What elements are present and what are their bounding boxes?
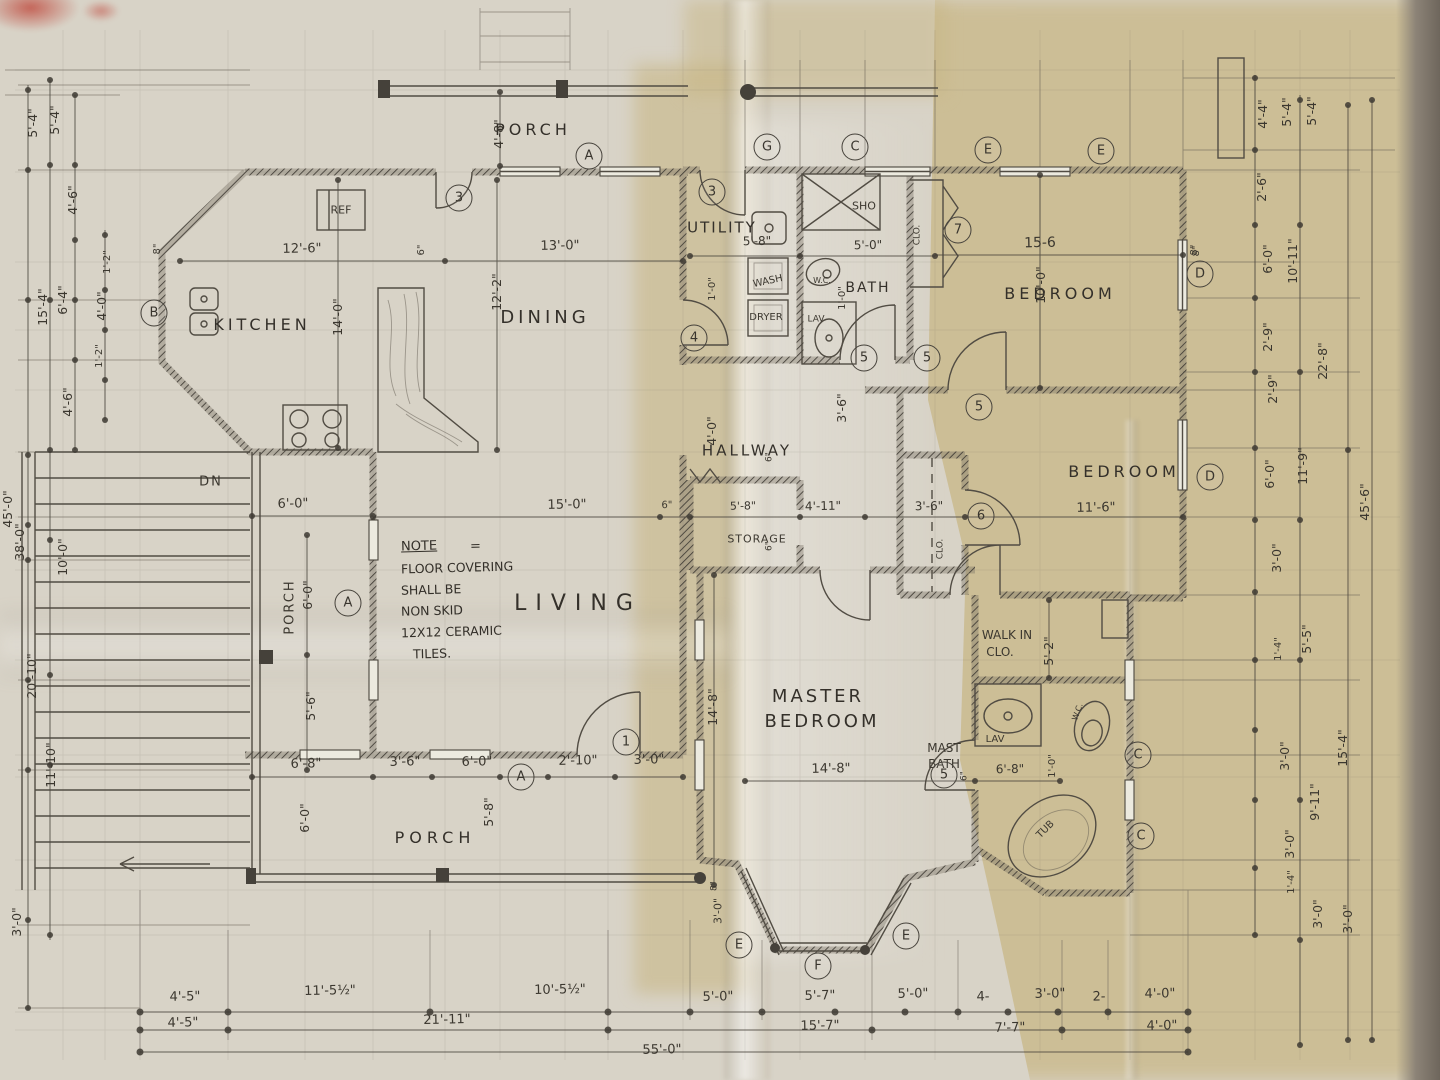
dim-left: 20'-10" [26,653,39,699]
tub [992,778,1112,894]
dim-left: 11'-10" [45,742,58,788]
dim-bottom: 4- [976,990,989,1003]
stove [283,405,347,450]
room-label-dining: DINING [500,309,589,327]
dim-porchb-2: 3'-6" [389,755,420,769]
dim-utility-width: 5'-8" [743,235,772,248]
note-line-3: NON SKID [401,604,463,618]
dim-bottom: 4'-0" [1146,1019,1177,1033]
room-label-storage: STORAGE [727,534,786,545]
dim-bay-3-0: 3'-0" [713,898,724,924]
dim-bottom: 5'-7" [804,989,835,1003]
dim-right: 3'-0" [1284,829,1297,859]
dim-left: 3'-0" [11,907,24,937]
room-label-bedroom2: BEDROOM [1068,464,1180,480]
dim-left: 38'-0" [14,523,27,561]
door-marker-4: 4 [681,325,708,352]
grid-marker-e: E [893,923,920,950]
room-label-master-1: MASTER [772,688,864,706]
dim-storage-width: 5'-8" [730,500,756,512]
door-marker-3: 3 [699,179,726,206]
door-marker-7: 7 [945,217,972,244]
room-label-master-2: BEDROOM [765,713,880,731]
dim-right: 5'-5" [1301,624,1314,654]
door-marker-1: 1 [613,729,640,756]
grid-marker-a: A [576,143,603,170]
dim-bottom: 4'-5" [167,1016,198,1030]
dim-mastbath-width: 6'-8" [996,763,1025,776]
dim-left: 45'-0" [2,490,15,528]
dim-bath-width: 5'-0" [854,239,883,252]
grid-marker-c: C [1128,823,1155,850]
dim-right: 5'-4" [1306,96,1319,126]
dim-porchb-5: 3'-0" [633,753,664,767]
dim-bottom: 15'-7" [800,1019,839,1033]
room-label-kitchen: KITCHEN [213,317,310,333]
dim-right: 2'-9" [1267,374,1280,404]
dim-wall-6in: 6" [961,771,970,781]
fixture-label-shower: SHO [852,201,876,212]
grid-marker-a: A [508,764,535,791]
fixture-label-ref: REF [331,205,352,216]
dim-right: 2'-9" [1262,322,1275,352]
door-marker-5: 5 [931,762,958,789]
grid-marker-e: E [975,137,1002,164]
dim-right: 4'-4" [1257,99,1270,129]
dim-wall-6in: 6" [417,245,427,256]
dim-wall-8in: 8" [711,881,720,891]
room-label-porch-top: PORCH [495,122,571,138]
dim-bottom: 3'-0" [1034,987,1065,1001]
dim-left: 6'-4" [57,285,70,315]
dim-master-width: 14'-8" [811,762,850,776]
dim-bottom-total: 55'-0" [642,1043,681,1057]
grid-marker-e: E [726,932,753,959]
dim-bottom: 10'-5½" [534,983,586,997]
dim-utility-1-0: 1'-0" [708,277,718,301]
dim-porchl-v2: 5'-6" [305,691,318,721]
room-label-bath: BATH [845,281,890,295]
dim-right: 2'-6" [1256,172,1269,202]
dim-bedroom1-depth: 10'-0" [1035,266,1048,304]
note-title: NOTE [401,540,437,554]
dim-right: 10'-11" [1287,238,1300,284]
note-line-4: 12X12 CERAMIC [401,625,502,640]
dim-right: 1'-4" [1274,637,1284,661]
dim-porchb-3: 6'-0" [461,755,492,769]
fixture-label-wc: W.C. [813,277,831,285]
note-line-1: FLOOR COVERING [401,561,514,576]
note-line-5: TILES. [413,648,451,661]
dim-hall-3-6: 3'-6" [836,393,849,423]
note-line-2: SHALL BE [401,583,462,597]
dim-bottom: 21'-11" [423,1013,471,1027]
grid-marker-g: G [754,134,781,161]
dim-mastbath-1-0: 1'-0" [1048,754,1058,778]
dim-wall-6in: 6" [661,501,672,511]
fixture-label-lav-master: LAV [986,735,1005,745]
dim-right: 3'-0" [1312,899,1325,929]
dim-bedroom2-width: 11'-6" [1076,501,1115,515]
dim-bottom: 4'-0" [1144,987,1175,1001]
dim-living-width: 15'-0" [547,498,586,512]
pier-column [1218,58,1244,158]
door-marker-6: 6 [968,503,995,530]
door-marker-5: 5 [914,345,941,372]
dim-porchl-width: 6'-0" [277,497,308,511]
dim-bottom: 5'-0" [702,990,733,1004]
room-label-walkin-2: CLO. [986,646,1013,658]
dim-right: 3'-0" [1271,543,1284,573]
fixture-label-dryer: DRYER [749,313,782,323]
dim-right: 3'-0" [1342,904,1355,934]
dim-kitchen-depth: 14'-0" [332,298,345,336]
dim-right: 6'-0" [1262,244,1275,274]
column-box [1102,600,1128,638]
dim-bottom: 7'-7" [994,1021,1025,1035]
stairs [22,452,250,890]
dim-right: 22'-8" [1317,342,1330,380]
floor-plan-sheet: PORCH KITCHEN DINING UTILITY BATH BEDROO… [0,0,1440,1080]
dim-porchl-v: 6'-0" [302,580,315,610]
grid-marker-d: D [1197,464,1224,491]
grid-marker-f: F [805,953,832,980]
dim-porchb-4: 2'-10" [558,754,597,768]
dim-porchb-v2: 6'-0" [299,803,312,833]
dim-bottom: 11'-5½" [304,984,356,998]
dim-right: 9'-11" [1309,783,1322,821]
kitchen-island [378,288,478,452]
room-label-walkin-1: WALK IN [982,629,1032,641]
room-label-porch-left: PORCH [284,579,297,634]
dim-master-depth: 14'-8" [707,688,720,726]
dim-left: 1'-2" [103,250,113,274]
dim-bottom: 2- [1092,990,1105,1003]
room-label-mastbath-1: MAST [927,742,961,754]
dim-dining-width: 13'-0" [540,239,579,253]
grid-marker-d: D [1187,261,1214,288]
dim-wall-6in: 6" [766,452,775,462]
dim-right: 1'-4" [1287,870,1297,894]
dim-dining-depth: 12'-2" [491,273,504,311]
dim-right: 6'-0" [1264,459,1277,489]
dim-left: 15'-4" [37,288,50,326]
door-marker-5: 5 [966,394,993,421]
lavatory [802,302,856,364]
grid-marker-b: B [141,300,168,327]
dim-left: 4'-6" [67,185,80,215]
dim-right: 5'-4" [1281,97,1294,127]
dim-right: 15'-4" [1337,729,1350,767]
grid-marker-e: E [1088,138,1115,165]
door-marker-5: 5 [851,345,878,372]
room-label-bedroom1: BEDROOM [1004,286,1116,302]
room-label-living: LIVING [514,593,642,615]
dim-left: 5'-4" [49,105,62,135]
dim-bottom: 4'-5" [169,990,200,1004]
grid-marker-c: C [842,134,869,161]
dim-bottom: 5'-0" [897,987,928,1001]
dim-walkin-depth: 5'-2" [1043,636,1056,666]
dim-bedroom1-width: 15-6 [1024,236,1056,251]
dim-porchb-1: 6'-8" [290,757,321,771]
dim-bath-1-0: 1'-0" [838,286,848,310]
dim-hall-width: 4'-11" [805,500,841,513]
dim-left: 4'-0" [96,291,109,321]
dim-left: 4'-6" [62,387,75,417]
dim-hall-depth: 4'-0" [706,416,719,446]
door-marker-3: 3 [446,185,473,212]
dim-left: 5'-4" [27,108,40,138]
dim-porchb-v1: 5'-8" [483,797,496,827]
dim-right: 45'-6" [1359,483,1372,521]
grid-marker-a: A [335,590,362,617]
dim-closet2-width: 3'-6" [915,500,944,513]
dim-wall-6in: 6" [766,541,775,551]
dim-porch-top-depth: 4'-8" [493,119,506,149]
dim-wall-8in: 8" [153,244,163,255]
fixture-label-lav: LAV [808,316,825,325]
note-equals: = [470,540,481,553]
dim-right: 11'-9" [1297,447,1310,485]
room-label-porch-bottom: PORCH [395,830,476,846]
dim-kitchen-width: 12'-6" [282,242,321,256]
stairs-dn-label: DN [199,476,223,489]
fixture-label-closet-bed2: CLO. [937,539,946,560]
dim-left: 10'-0" [57,538,70,576]
fixture-label-closet-bath: CLO. [914,225,923,246]
grid-marker-c: C [1125,742,1152,769]
dim-right: 8" [1192,246,1202,257]
dim-left: 1'-2" [95,344,105,368]
dim-right: 3'-0" [1279,741,1292,771]
